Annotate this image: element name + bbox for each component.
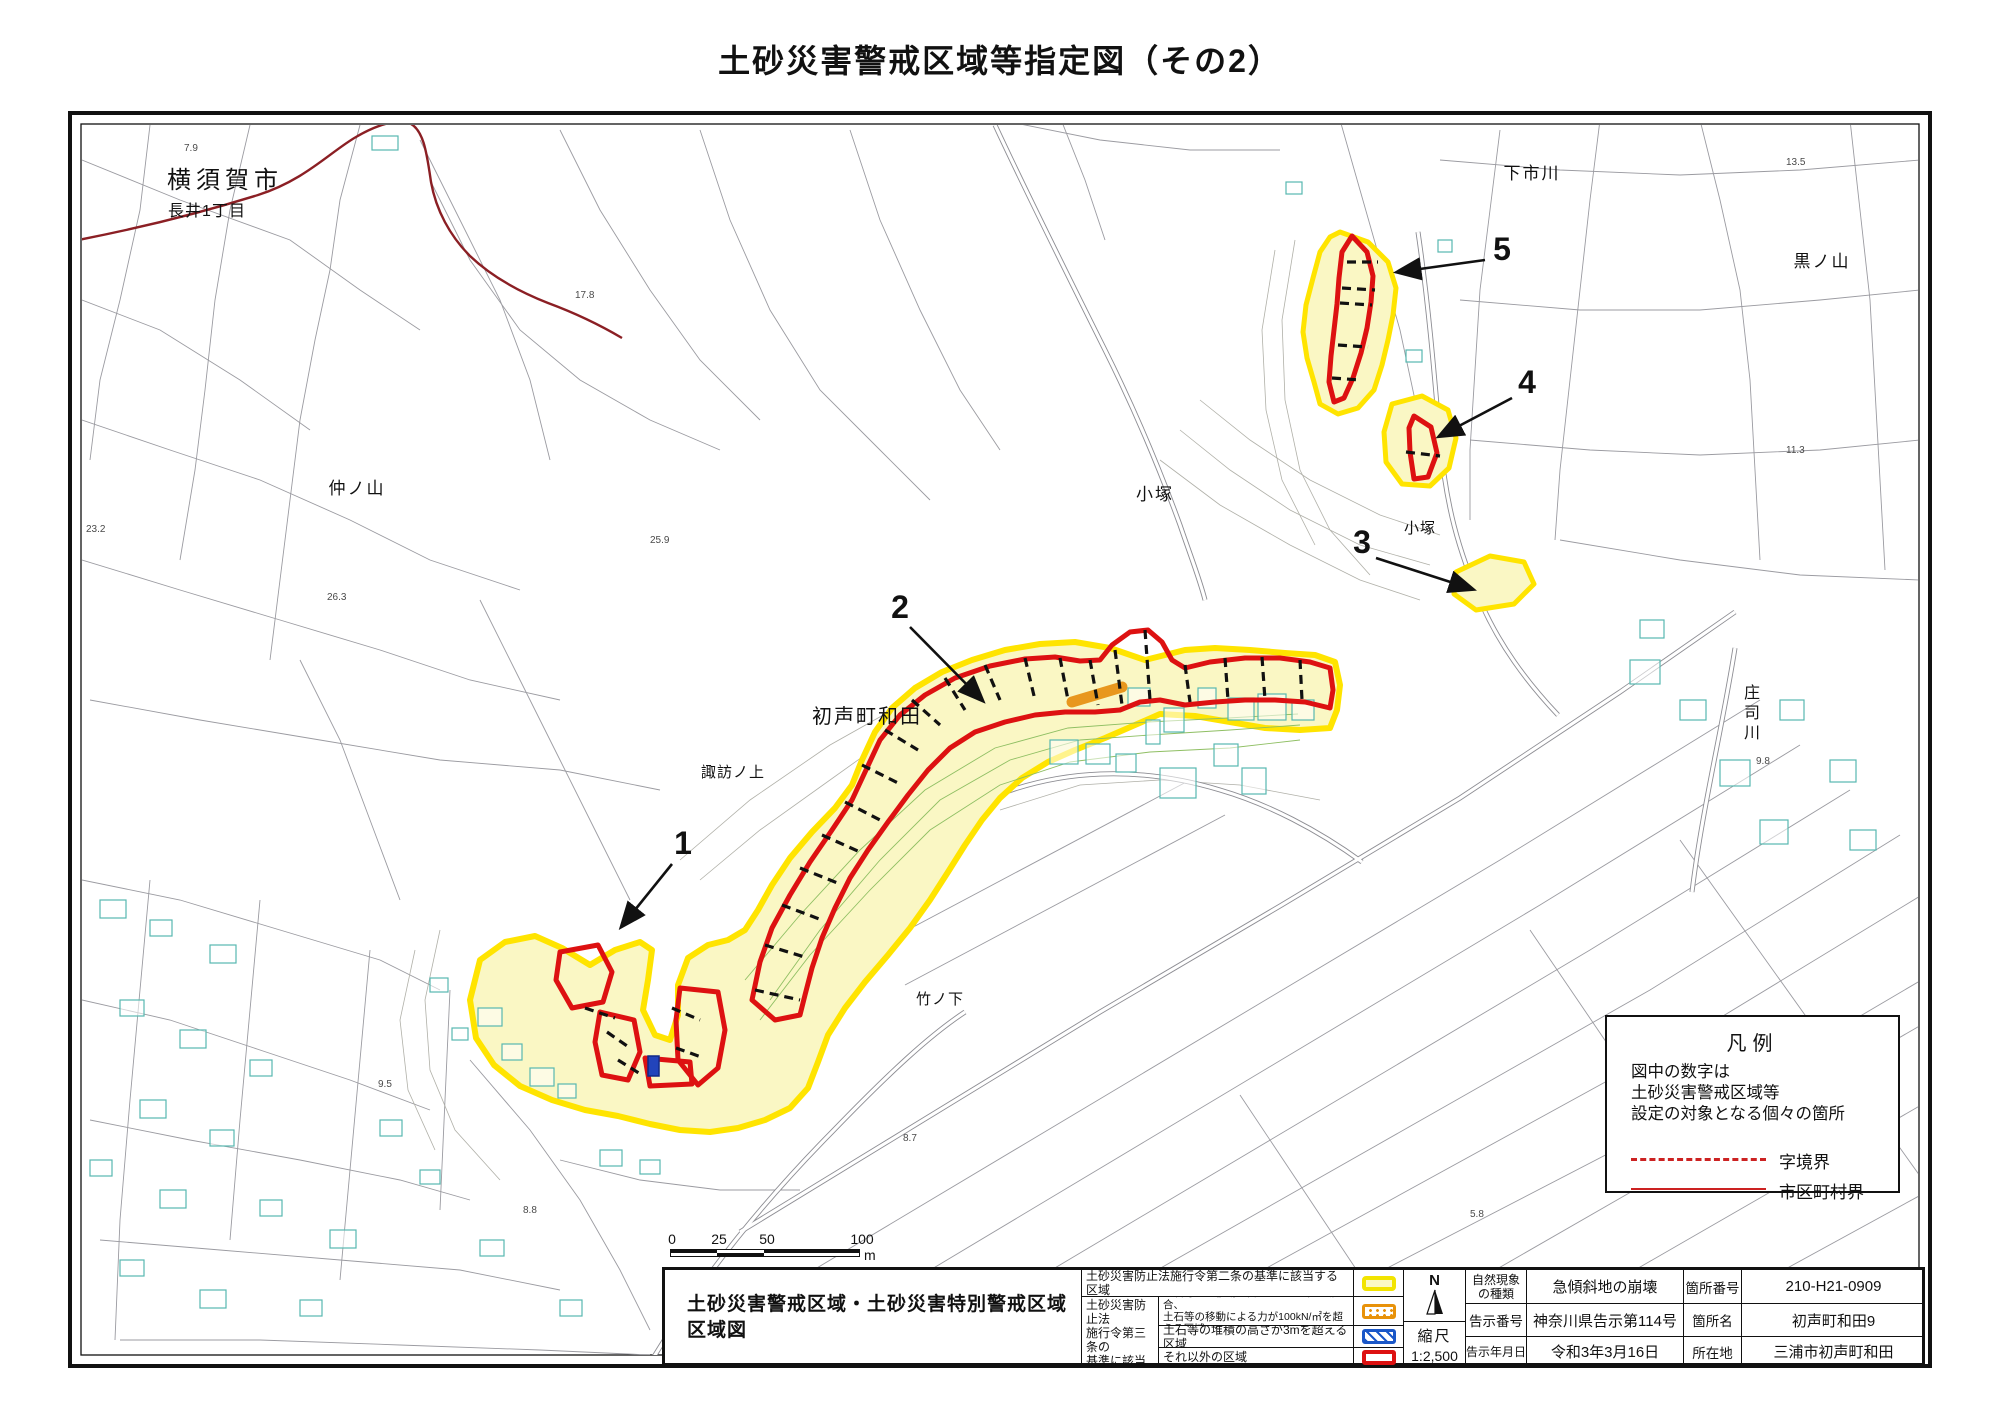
region-title-cell: 土砂災害警戒区域・土砂災害特別警戒区域 区域図 [665, 1270, 1081, 1366]
map-sheet: 土砂災害警戒区域等指定図（その2） [0, 0, 2000, 1414]
place-label-9: 諏訪ノ上 [701, 764, 765, 781]
solid-line-symbol [1631, 1188, 1766, 1190]
site-number-1[interactable]: 1 [674, 825, 692, 861]
elevation-label-3: 25.9 [650, 535, 670, 546]
elevation-label-7: 8.7 [903, 1133, 917, 1144]
compass-n-label: N [1429, 1272, 1440, 1289]
legend-row3-label: 土石等の堆積の高さが3mを超える区域 [1158, 1325, 1353, 1347]
legend-row1-label: 土砂災害防止法施行令第二条の基準に該当する区域 [1081, 1270, 1353, 1296]
place-label-3: 下市川 [1504, 164, 1561, 183]
map-canvas[interactable]: 横須賀市長井1丁目仲ノ山下市川黒ノ山小塚小塚庄司川初声町和田諏訪ノ上竹ノ下 7.… [0, 0, 2000, 1414]
deposit-zone-blue-marker[interactable] [648, 1056, 659, 1076]
elevation-label-9: 13.5 [1786, 157, 1806, 168]
scale-unit: m [864, 1247, 876, 1263]
elevation-label-6: 8.8 [523, 1205, 537, 1216]
info-value-site-name: 初声町和田9 [1741, 1303, 1925, 1336]
legend-row2-swatch-cell [1353, 1296, 1403, 1325]
scale-bar-strip [670, 1249, 860, 1257]
legend-row2-label: 土石等の（移動）高さが1m以下の場合、 土石等の移動による力が100kN/㎡を超… [1158, 1296, 1353, 1325]
scale-label: 縮尺 [1417, 1325, 1451, 1346]
place-label-5: 小塚 [1136, 485, 1174, 504]
info-label-site-name: 箇所名 [1683, 1303, 1741, 1336]
elevation-label-0: 7.9 [184, 143, 198, 154]
bottom-table: 土砂災害警戒区域・土砂災害特別警戒区域 区域図 土砂災害防止法施行令第二条の基準… [662, 1267, 1925, 1366]
roads [652, 125, 1735, 1360]
legend-title: 凡例 [1607, 1027, 1898, 1056]
site-number-2[interactable]: 2 [891, 589, 909, 625]
elevation-label-4: 26.3 [327, 592, 347, 603]
info-value-site-number: 210-H21-0909 [1741, 1270, 1925, 1303]
info-label-phenomenon: 自然現象の種類 [1465, 1270, 1526, 1303]
orange-zone-swatch [1362, 1304, 1396, 1319]
elevation-label-11: 5.8 [1470, 1209, 1484, 1220]
map-legend-box: 凡例 図中の数字は 土砂災害警戒区域等 設定の対象となる個々の箇所 字境界 市区… [1605, 1015, 1900, 1193]
legend-group-label: 土砂災害防止法 施行令第三条の 基準に該当する 区域 [1081, 1296, 1158, 1366]
place-label-10: 竹ノ下 [916, 991, 964, 1008]
legend-row1-swatch-cell [1353, 1270, 1403, 1296]
site-number-3[interactable]: 3 [1353, 524, 1371, 560]
site-arrow-1 [622, 864, 672, 926]
place-labels: 横須賀市長井1丁目仲ノ山下市川黒ノ山小塚小塚庄司川初声町和田諏訪ノ上竹ノ下 [167, 164, 1851, 1008]
elevation-label-5: 9.5 [378, 1079, 392, 1090]
scale-bar: 0 25 50 100 m [670, 1231, 900, 1265]
info-label-site-number: 箇所番号 [1683, 1270, 1741, 1303]
place-label-0: 横須賀市 [167, 167, 283, 194]
legend-row4-label: それ以外の区域 [1158, 1347, 1353, 1366]
scale-tick-50: 50 [759, 1231, 775, 1247]
place-label-8: 初声町和田 [812, 705, 922, 728]
compass-cell: N [1403, 1270, 1465, 1321]
yellow-zone-swatch [1362, 1276, 1396, 1291]
place-label-6: 小塚 [1404, 520, 1436, 537]
legend-item-municipal-boundary: 市区町村界 [1607, 1178, 1898, 1200]
site-number-5[interactable]: 5 [1493, 231, 1511, 267]
scale-tick-100: 100 [850, 1231, 873, 1247]
place-label-7: 庄司川 [1744, 684, 1760, 742]
legend-item-aza-boundary: 字境界 [1607, 1148, 1898, 1170]
scale-cell: 縮尺 1:2,500 [1403, 1321, 1465, 1366]
elevation-label-10: 11.3 [1786, 445, 1805, 456]
info-value-location: 三浦市初声町和田 [1741, 1336, 1925, 1366]
info-label-location: 所在地 [1683, 1336, 1741, 1366]
municipal-boundary-line [78, 122, 622, 338]
place-label-4: 黒ノ山 [1794, 252, 1851, 271]
scale-tick-0: 0 [668, 1231, 676, 1247]
elevation-label-8: 9.8 [1756, 756, 1770, 767]
scale-tick-25: 25 [711, 1231, 727, 1247]
north-arrow-icon [1425, 1289, 1445, 1315]
elevation-label-2: 23.2 [86, 524, 106, 535]
legend-row4-swatch-cell [1353, 1347, 1403, 1366]
site-arrow-5 [1398, 260, 1485, 272]
red-zone-swatch [1362, 1350, 1396, 1365]
place-label-1: 長井1丁目 [168, 202, 246, 220]
info-label-notice-number: 告示番号 [1465, 1303, 1526, 1336]
info-value-phenomenon: 急傾斜地の崩壊 [1526, 1270, 1683, 1303]
scale-value: 1:2,500 [1411, 1348, 1458, 1364]
dashed-line-symbol [1631, 1158, 1766, 1161]
warning-zone-4[interactable] [1384, 396, 1456, 486]
place-label-2: 仲ノ山 [329, 479, 386, 498]
site-number-4[interactable]: 4 [1518, 364, 1536, 400]
legend-note: 図中の数字は 土砂災害警戒区域等 設定の対象となる個々の箇所 [1631, 1062, 1898, 1125]
info-value-notice-date: 令和3年3月16日 [1526, 1336, 1683, 1366]
info-label-notice-date: 告示年月日 [1465, 1336, 1526, 1366]
elevation-label-1: 17.8 [575, 290, 595, 301]
legend-row3-swatch-cell [1353, 1325, 1403, 1347]
info-value-notice-number: 神奈川県告示第114号 [1526, 1303, 1683, 1336]
blue-zone-swatch [1362, 1329, 1396, 1344]
site-number-markers[interactable]: 12345 [622, 231, 1536, 926]
